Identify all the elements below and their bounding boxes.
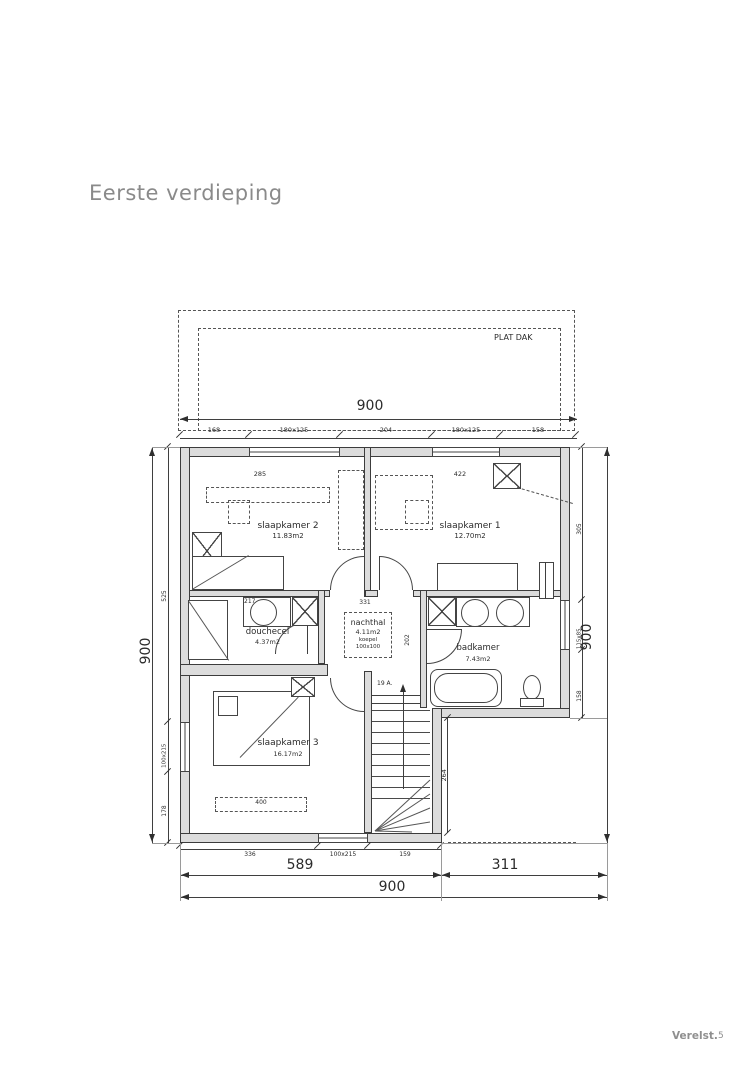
wardrobe: [291, 677, 315, 697]
door-leaf: [364, 678, 365, 712]
room-area: 4.37m2: [215, 639, 320, 646]
dim-arrow: [442, 872, 450, 878]
footer-logo: Verelst.: [672, 1031, 718, 1042]
dim-tick: [176, 431, 183, 438]
extension-line: [152, 447, 180, 448]
dim-line: [607, 447, 608, 843]
page: Eerste verdieping PLAT DAK 900 168 180x1…: [0, 0, 743, 1080]
left-total-dim: 900: [139, 631, 153, 671]
stair-tread: [372, 703, 420, 704]
extension-line: [180, 843, 181, 901]
room-area: 7.43m2: [428, 656, 528, 663]
roof-outline-inner: [198, 328, 561, 431]
wall-segment: [318, 590, 325, 664]
room-name: slaapkamer 3: [228, 739, 348, 748]
room-name: slaapkamer 1: [410, 522, 530, 531]
dim-line: [180, 419, 577, 420]
dim-arrow: [180, 416, 188, 422]
window: [432, 447, 500, 457]
room-width-dim: 285: [240, 471, 280, 478]
counter-dim: 217: [244, 599, 255, 605]
bed: [437, 563, 518, 591]
top-segment-dim: 180x125: [268, 427, 320, 434]
door-leaf: [307, 622, 308, 654]
dim-arrow: [149, 448, 155, 456]
dim-arrow: [181, 894, 189, 900]
chair: [228, 500, 250, 524]
extension-line: [152, 843, 180, 844]
extension-line: [607, 843, 608, 901]
dim-arrow: [598, 894, 606, 900]
dim-arrow: [604, 834, 610, 842]
extension-line: [570, 718, 607, 719]
door-leaf: [364, 556, 365, 590]
hall-side-dim: 202: [405, 625, 411, 655]
room-area: 12.70m2: [410, 533, 530, 540]
chair: [405, 500, 429, 524]
dim-arrow: [569, 416, 577, 422]
dim-tick: [314, 842, 321, 849]
left-segment-dim: 100x215: [162, 736, 168, 776]
window: [560, 600, 570, 650]
page-number: 5: [718, 1032, 724, 1041]
dim-line: [180, 849, 442, 850]
room-name: badkamer: [428, 644, 528, 653]
skylight-size: 100x100: [338, 645, 398, 651]
bottom-segment-dim: 159: [380, 852, 430, 858]
dim-line: [168, 447, 169, 843]
cutout-height-dim: 264: [441, 760, 448, 790]
top-total-dim: 900: [350, 399, 390, 413]
dim-arrow: [149, 834, 155, 842]
dim-line: [180, 897, 607, 898]
left-segment-dim: 178: [162, 796, 168, 826]
door-arc: [330, 556, 364, 590]
dim-arrow: [181, 872, 189, 878]
dim-arrow: [598, 872, 606, 878]
wall-segment: [365, 590, 378, 597]
duct: [539, 562, 554, 599]
room-name: nachthal: [338, 619, 398, 627]
window: [180, 722, 190, 772]
washbasin: [496, 599, 524, 627]
room-area: 11.83m2: [228, 533, 348, 540]
room-name: slaapkamer 2: [228, 522, 348, 531]
dim-tick: [428, 431, 435, 438]
extension-line: [441, 843, 607, 844]
dim-arrow: [604, 448, 610, 456]
dim-line: [180, 875, 441, 876]
dim-arrow: [433, 872, 441, 878]
door-arc: [330, 678, 364, 712]
duct-line: [545, 562, 546, 599]
wardrobe: [292, 597, 318, 626]
room-width-dim: 422: [440, 471, 480, 478]
bathtub-inner: [434, 673, 498, 703]
extension-line: [441, 843, 442, 901]
dim-tick: [364, 842, 371, 849]
right-segment-dim: 305: [577, 514, 583, 544]
left-segment-dim: 525: [162, 581, 168, 611]
toilet-bowl: [523, 675, 541, 700]
extension-line: [570, 447, 607, 448]
top-segment-dim: 168: [196, 427, 232, 434]
dim-tick: [336, 431, 343, 438]
desk: [206, 487, 330, 503]
skylight-label: koepel: [338, 638, 398, 644]
door-leaf: [427, 629, 462, 630]
right-segment-dim: 158: [577, 681, 583, 711]
dim-line: [180, 438, 577, 439]
wall-segment: [364, 671, 372, 833]
roof-label: PLAT DAK: [494, 334, 532, 342]
bottom-right-dim: 311: [475, 858, 535, 872]
stairs-winders: [372, 776, 432, 833]
wardrobe: [428, 597, 456, 626]
top-segment-dim: 204: [368, 427, 404, 434]
dim-tick: [245, 431, 252, 438]
page-title: Eerste verdieping: [89, 183, 283, 204]
wall-segment: [189, 590, 330, 597]
dim-tick: [572, 431, 579, 438]
dim-line: [441, 875, 607, 876]
bottom-segment-dim: 336: [225, 852, 275, 858]
stair-walkline: [403, 689, 404, 789]
wall-segment: [560, 447, 570, 718]
room-area: 16.17m2: [228, 751, 348, 758]
door-leaf: [379, 556, 380, 590]
toilet-tank: [520, 698, 544, 707]
wall-segment: [180, 664, 328, 676]
wall-segment: [364, 447, 371, 597]
wall-segment: [180, 833, 442, 843]
right-total-dim: 900: [580, 617, 594, 657]
washbasin: [461, 599, 489, 627]
bottom-total-dim: 900: [362, 880, 422, 894]
room-area: 4.11m2: [338, 629, 398, 636]
wardrobe-width-dim: 400: [215, 800, 307, 806]
wall-segment: [180, 447, 570, 457]
dim-tick: [444, 829, 451, 836]
room-name: douchecel: [215, 628, 320, 637]
stair-direction-arrow: [400, 684, 406, 692]
wardrobe: [493, 463, 521, 489]
top-segment-dim: 180x125: [440, 427, 492, 434]
stairs-label: 19 A.: [377, 681, 392, 687]
pillow: [218, 696, 238, 716]
hall-width-dim: 331: [350, 600, 380, 606]
dim-line: [582, 447, 583, 718]
door-arc: [379, 556, 413, 590]
top-segment-dim: 158: [520, 427, 556, 434]
wall-segment: [420, 590, 427, 708]
window: [318, 833, 368, 843]
window: [249, 447, 340, 457]
bottom-left-dim: 589: [270, 858, 330, 872]
stair-tread: [372, 695, 420, 696]
dim-tick: [496, 431, 503, 438]
wall-segment: [432, 708, 570, 718]
